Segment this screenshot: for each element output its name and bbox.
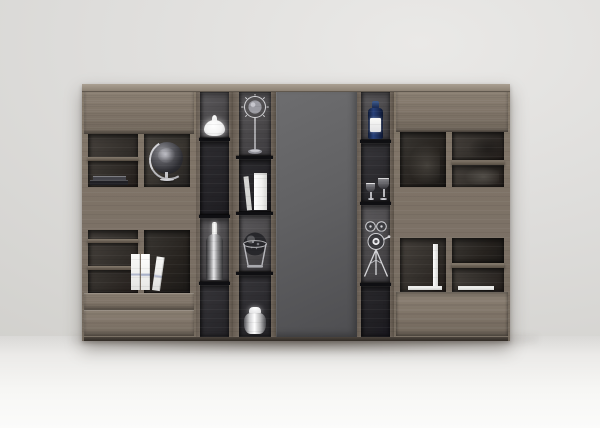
decor-white-bookend bbox=[408, 244, 442, 290]
compartment bbox=[200, 91, 229, 138]
compartment bbox=[239, 91, 271, 156]
decor-tripod-projector bbox=[361, 220, 391, 282]
decor-black-globe bbox=[149, 141, 184, 183]
display-column-2 bbox=[233, 84, 276, 341]
decor-sputnik-ornament bbox=[241, 94, 269, 156]
compartment bbox=[200, 285, 229, 337]
shelf bbox=[360, 283, 391, 286]
shelf-bay bbox=[88, 134, 138, 187]
display-column-1 bbox=[196, 84, 233, 341]
center-sliding-panel bbox=[276, 91, 357, 337]
compartment bbox=[239, 215, 271, 272]
shelf bbox=[199, 282, 230, 285]
compartment bbox=[361, 205, 390, 283]
display-column-3 bbox=[357, 84, 394, 341]
unit-top-rail bbox=[82, 84, 510, 92]
shelf-bay bbox=[400, 238, 446, 292]
right-cabinet-drawer bbox=[396, 292, 508, 336]
split-bay bbox=[452, 132, 504, 187]
decor-flat-book bbox=[458, 286, 494, 290]
shelf bbox=[360, 140, 391, 143]
right-cabinet-top-door bbox=[396, 91, 508, 132]
decor-caged-globe bbox=[239, 228, 271, 270]
wall-unit bbox=[82, 84, 510, 341]
shelf bbox=[360, 202, 391, 205]
globe-stand-arc bbox=[145, 136, 193, 184]
scene bbox=[0, 0, 600, 428]
display-niche-globe bbox=[144, 134, 190, 187]
left-cabinet-top-door bbox=[84, 91, 194, 134]
left-cabinet-drawer bbox=[84, 293, 194, 310]
left-cabinet-drawer bbox=[84, 310, 194, 336]
shelf bbox=[236, 156, 273, 159]
decor-blue-bottle bbox=[368, 101, 383, 139]
shelf bbox=[199, 138, 230, 141]
left-cabinet bbox=[82, 84, 196, 341]
shelf bbox=[88, 157, 138, 161]
compartment bbox=[200, 218, 229, 282]
decor-dome-vase bbox=[204, 115, 225, 136]
decor-book-stack bbox=[90, 175, 130, 185]
decor-standing-book bbox=[247, 173, 267, 210]
left-cabinet-lower-open-section bbox=[82, 230, 196, 293]
right-cabinet-upper-open-section bbox=[394, 132, 510, 187]
decor-white-jar bbox=[244, 307, 266, 334]
shelf-bay bbox=[400, 132, 446, 187]
left-cabinet-upper-open-section bbox=[82, 134, 196, 187]
compartment bbox=[361, 91, 390, 140]
unit-plinth bbox=[84, 337, 508, 341]
compartment bbox=[239, 159, 271, 212]
right-cabinet bbox=[394, 84, 510, 341]
compartment bbox=[361, 143, 390, 202]
compartment bbox=[239, 275, 271, 337]
split-bay bbox=[452, 238, 504, 292]
right-cabinet-lower-open-section bbox=[394, 238, 510, 292]
compartment bbox=[361, 286, 390, 337]
shelf bbox=[88, 239, 138, 243]
compartment bbox=[200, 141, 229, 215]
decor-white-books bbox=[131, 252, 165, 290]
shelf bbox=[199, 215, 230, 218]
decor-steel-bottle-vase bbox=[206, 222, 223, 280]
shelf bbox=[236, 272, 273, 275]
decor-wine-glasses bbox=[366, 178, 389, 200]
shelf bbox=[236, 212, 273, 215]
